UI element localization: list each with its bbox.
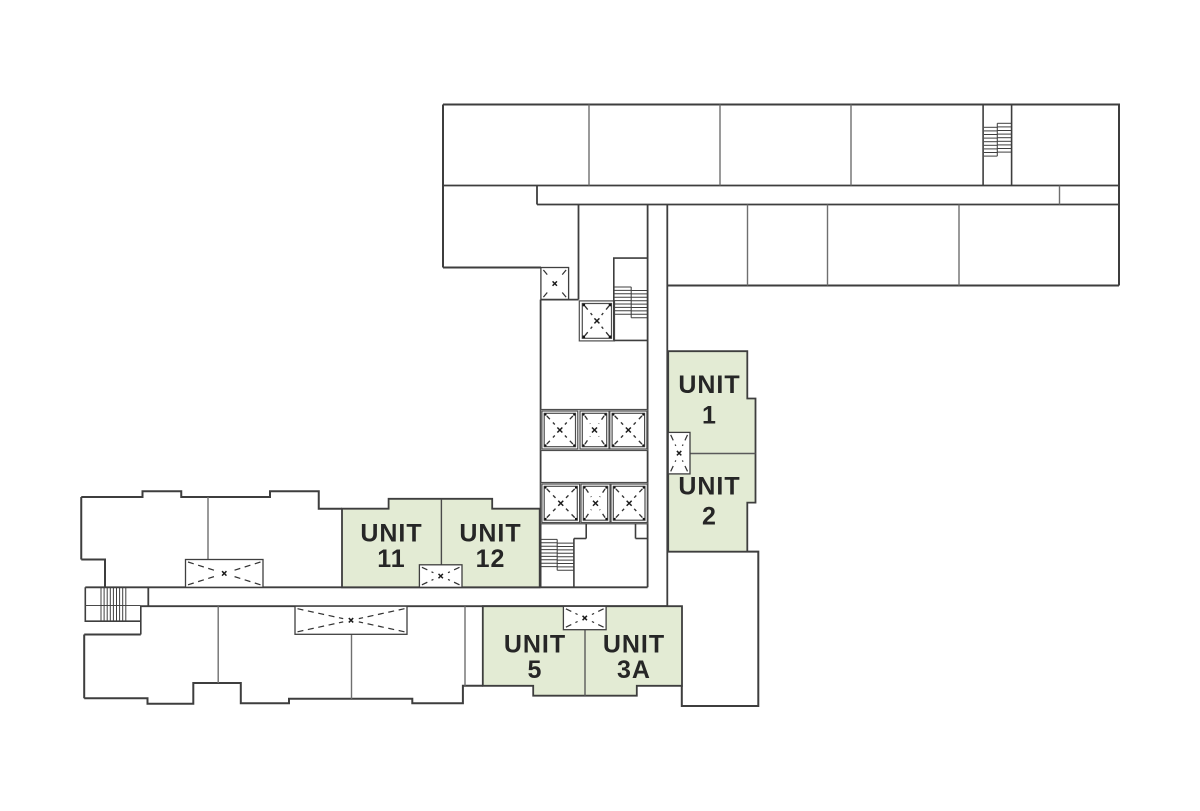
svg-text:1: 1 <box>702 401 717 429</box>
svg-text:UNIT: UNIT <box>504 631 566 659</box>
svg-text:2: 2 <box>702 503 717 531</box>
svg-text:UNIT: UNIT <box>678 473 740 501</box>
svg-text:UNIT: UNIT <box>678 371 740 399</box>
svg-text:12: 12 <box>476 545 506 573</box>
svg-text:3A: 3A <box>617 656 651 684</box>
svg-text:UNIT: UNIT <box>603 631 665 659</box>
svg-text:5: 5 <box>528 656 543 684</box>
svg-text:11: 11 <box>377 545 405 573</box>
svg-text:UNIT: UNIT <box>459 520 521 548</box>
svg-text:UNIT: UNIT <box>360 520 422 548</box>
